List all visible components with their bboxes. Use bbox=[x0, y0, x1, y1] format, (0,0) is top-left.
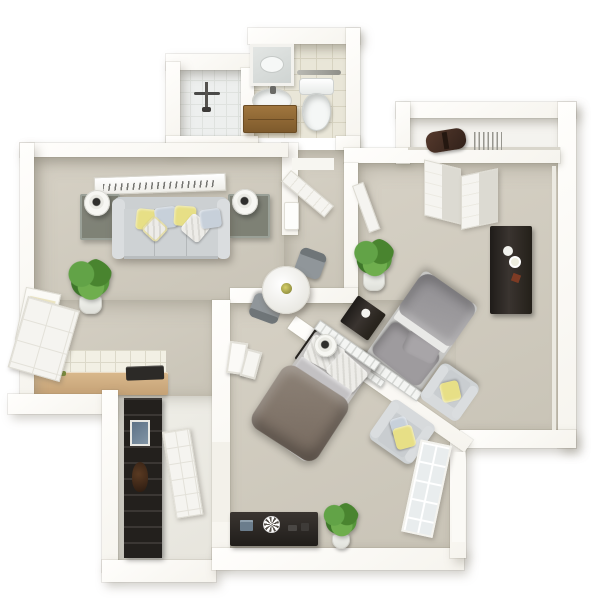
tall-dresser bbox=[490, 226, 532, 314]
table-lamp-left bbox=[84, 190, 110, 216]
cabinet-drawer-line bbox=[248, 119, 294, 120]
bedroom-doorway-opening bbox=[212, 442, 230, 522]
french-doorway-opening bbox=[452, 452, 465, 542]
shower-head-icon bbox=[202, 107, 211, 112]
living-wall-top bbox=[20, 143, 288, 157]
dresser-decor-white-1 bbox=[503, 246, 513, 256]
corridor-wall-bottom bbox=[102, 560, 216, 582]
media-console bbox=[230, 512, 318, 546]
towel-bar bbox=[297, 70, 341, 75]
bathroom-wall-top-right bbox=[248, 28, 360, 44]
console-clock bbox=[263, 516, 280, 533]
console-item-2 bbox=[301, 523, 309, 531]
bedroom-right-wall-bottom bbox=[460, 430, 576, 448]
small-picture bbox=[130, 420, 150, 446]
closet-wall-top bbox=[396, 102, 576, 118]
bedroom-right-plant bbox=[352, 238, 396, 292]
living-room-plant bbox=[66, 258, 114, 316]
bifold-closet-door-right bbox=[461, 168, 498, 230]
console-item-1 bbox=[288, 525, 297, 531]
wall-art-scribbles bbox=[103, 180, 217, 191]
armchair-pillow-yellow bbox=[439, 380, 462, 404]
bathroom-wall-right bbox=[346, 28, 360, 152]
faucet-icon bbox=[270, 86, 276, 94]
cooktop bbox=[126, 365, 164, 380]
toilet-bowl bbox=[302, 93, 331, 131]
console-books bbox=[240, 520, 253, 531]
nightstand-lamp bbox=[314, 334, 337, 357]
mirror-reflection-sink bbox=[260, 56, 284, 73]
plant-foliage bbox=[66, 258, 114, 304]
throw-pillow-blue-2 bbox=[199, 208, 222, 230]
sofa bbox=[112, 197, 230, 265]
bathroom-doorway-floor bbox=[292, 158, 334, 170]
shower-riser-icon bbox=[205, 82, 208, 110]
plant-foliage bbox=[322, 502, 360, 540]
floorplan-render bbox=[0, 0, 600, 600]
corridor-shelving-closet bbox=[124, 398, 162, 558]
living-wall-bottom bbox=[8, 394, 114, 414]
dresser-decor-red bbox=[511, 273, 521, 283]
bedroom-right-wall-top bbox=[344, 148, 560, 163]
dining-table bbox=[262, 266, 310, 314]
bedroom-bottom-plant bbox=[322, 502, 360, 550]
east-wall-baseboard bbox=[552, 166, 556, 430]
wall-unit bbox=[284, 202, 299, 230]
duffel-strap bbox=[442, 132, 450, 150]
east-wall bbox=[558, 102, 576, 448]
sofa-arm-right bbox=[217, 199, 230, 259]
corridor-wall-left bbox=[102, 390, 118, 572]
vanity-cabinet bbox=[243, 105, 297, 133]
toilet bbox=[299, 78, 334, 132]
nightstand-mug bbox=[359, 307, 372, 320]
vanity-mirror bbox=[250, 44, 294, 86]
table-lamp-right bbox=[232, 189, 258, 215]
bedroom-bottom-wall-left bbox=[212, 300, 230, 566]
wire-hangers-icon bbox=[474, 132, 502, 150]
plant-foliage bbox=[352, 238, 396, 280]
dark-bottle bbox=[132, 462, 148, 492]
table-centerpiece bbox=[281, 283, 292, 294]
shower-fixture-icon bbox=[192, 82, 222, 114]
dresser-decor-white-2 bbox=[509, 256, 521, 268]
bedroom-bottom-wall-south bbox=[212, 548, 464, 570]
bifold-closet-door-left bbox=[424, 159, 461, 224]
